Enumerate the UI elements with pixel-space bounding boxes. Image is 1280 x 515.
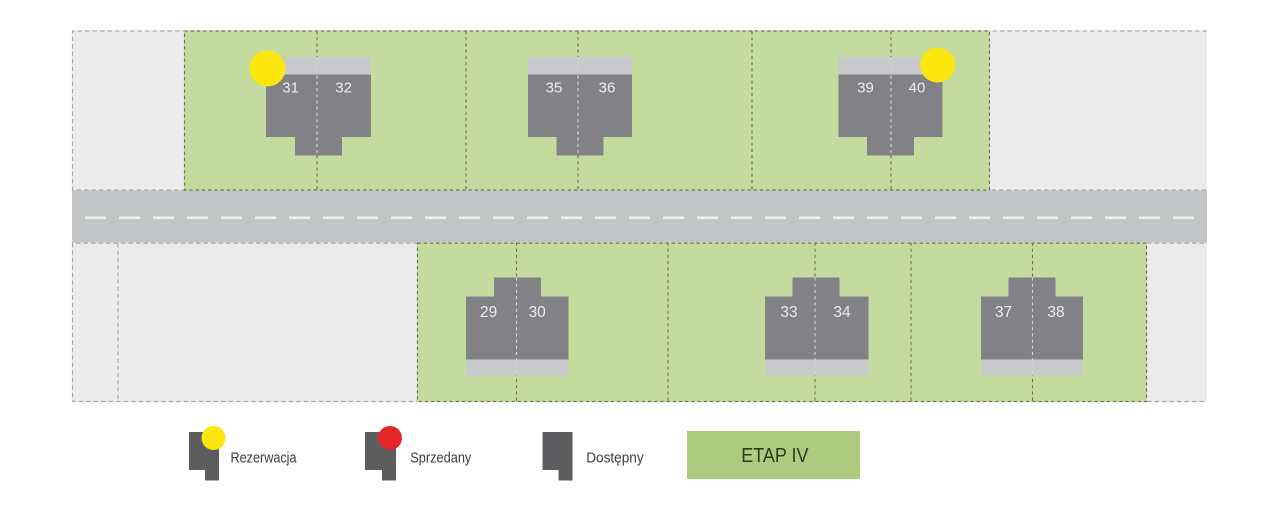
svg-text:ETAP IV: ETAP IV <box>741 445 809 467</box>
svg-text:32: 32 <box>335 80 352 97</box>
svg-text:31: 31 <box>282 80 299 97</box>
svg-text:29: 29 <box>480 304 497 321</box>
svg-text:34: 34 <box>833 304 851 321</box>
svg-text:38: 38 <box>1047 304 1064 321</box>
svg-text:Sprzedany: Sprzedany <box>410 450 471 467</box>
svg-text:30: 30 <box>529 304 547 321</box>
svg-text:35: 35 <box>546 80 563 97</box>
svg-text:37: 37 <box>995 304 1012 321</box>
svg-text:33: 33 <box>780 304 797 321</box>
svg-text:40: 40 <box>909 80 926 97</box>
svg-text:Dostępny: Dostępny <box>586 450 644 467</box>
svg-text:36: 36 <box>599 80 616 97</box>
svg-text:Rezerwacja: Rezerwacja <box>231 450 298 467</box>
svg-text:39: 39 <box>857 80 874 97</box>
